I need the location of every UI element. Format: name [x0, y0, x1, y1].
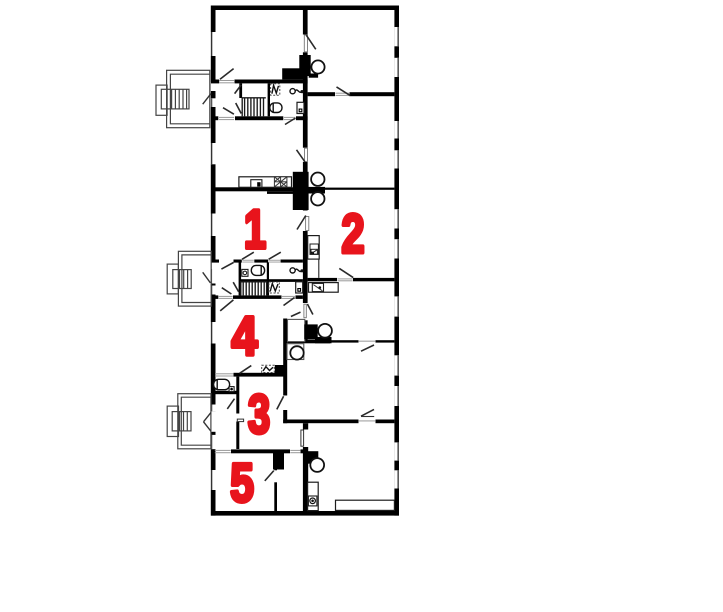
- svg-text:3: 3: [248, 384, 270, 446]
- svg-text:5: 5: [230, 452, 254, 513]
- svg-text:2: 2: [341, 204, 364, 265]
- svg-text:1: 1: [244, 199, 266, 261]
- svg-text:4: 4: [231, 305, 258, 366]
